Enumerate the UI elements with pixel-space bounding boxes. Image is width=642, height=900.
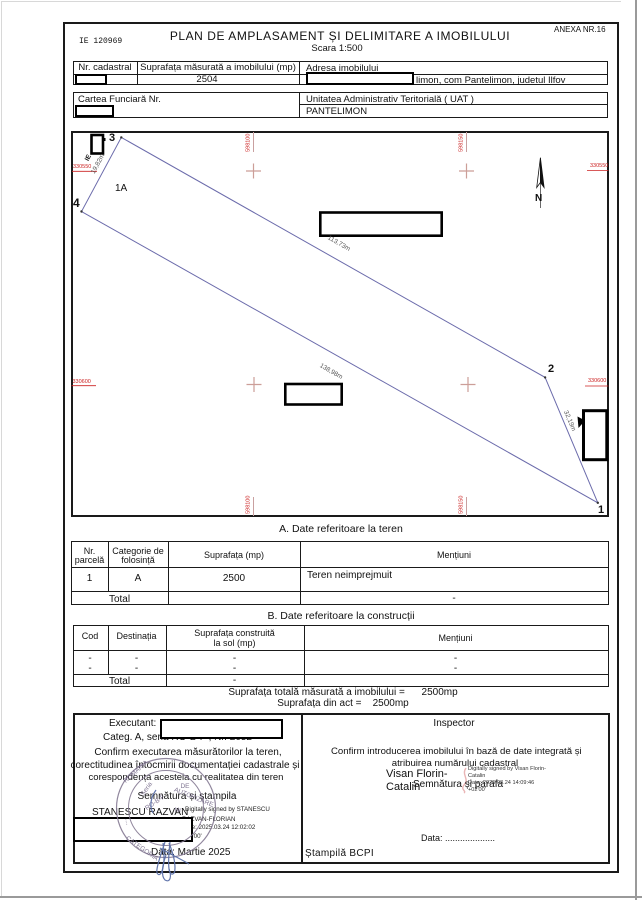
svg-text:AUTORIZARE: AUTORIZARE bbox=[173, 787, 215, 809]
svg-text:Nr: Nr bbox=[175, 807, 183, 814]
svg-text:RO-B-F: RO-B-F bbox=[144, 793, 166, 812]
svg-text:Seria: Seria bbox=[140, 781, 155, 798]
svg-text:ROMANIA: ROMANIA bbox=[122, 759, 150, 785]
svg-text:....: .... bbox=[123, 818, 131, 827]
svg-text:CATEGORIA: CATEGORIA bbox=[124, 835, 160, 863]
